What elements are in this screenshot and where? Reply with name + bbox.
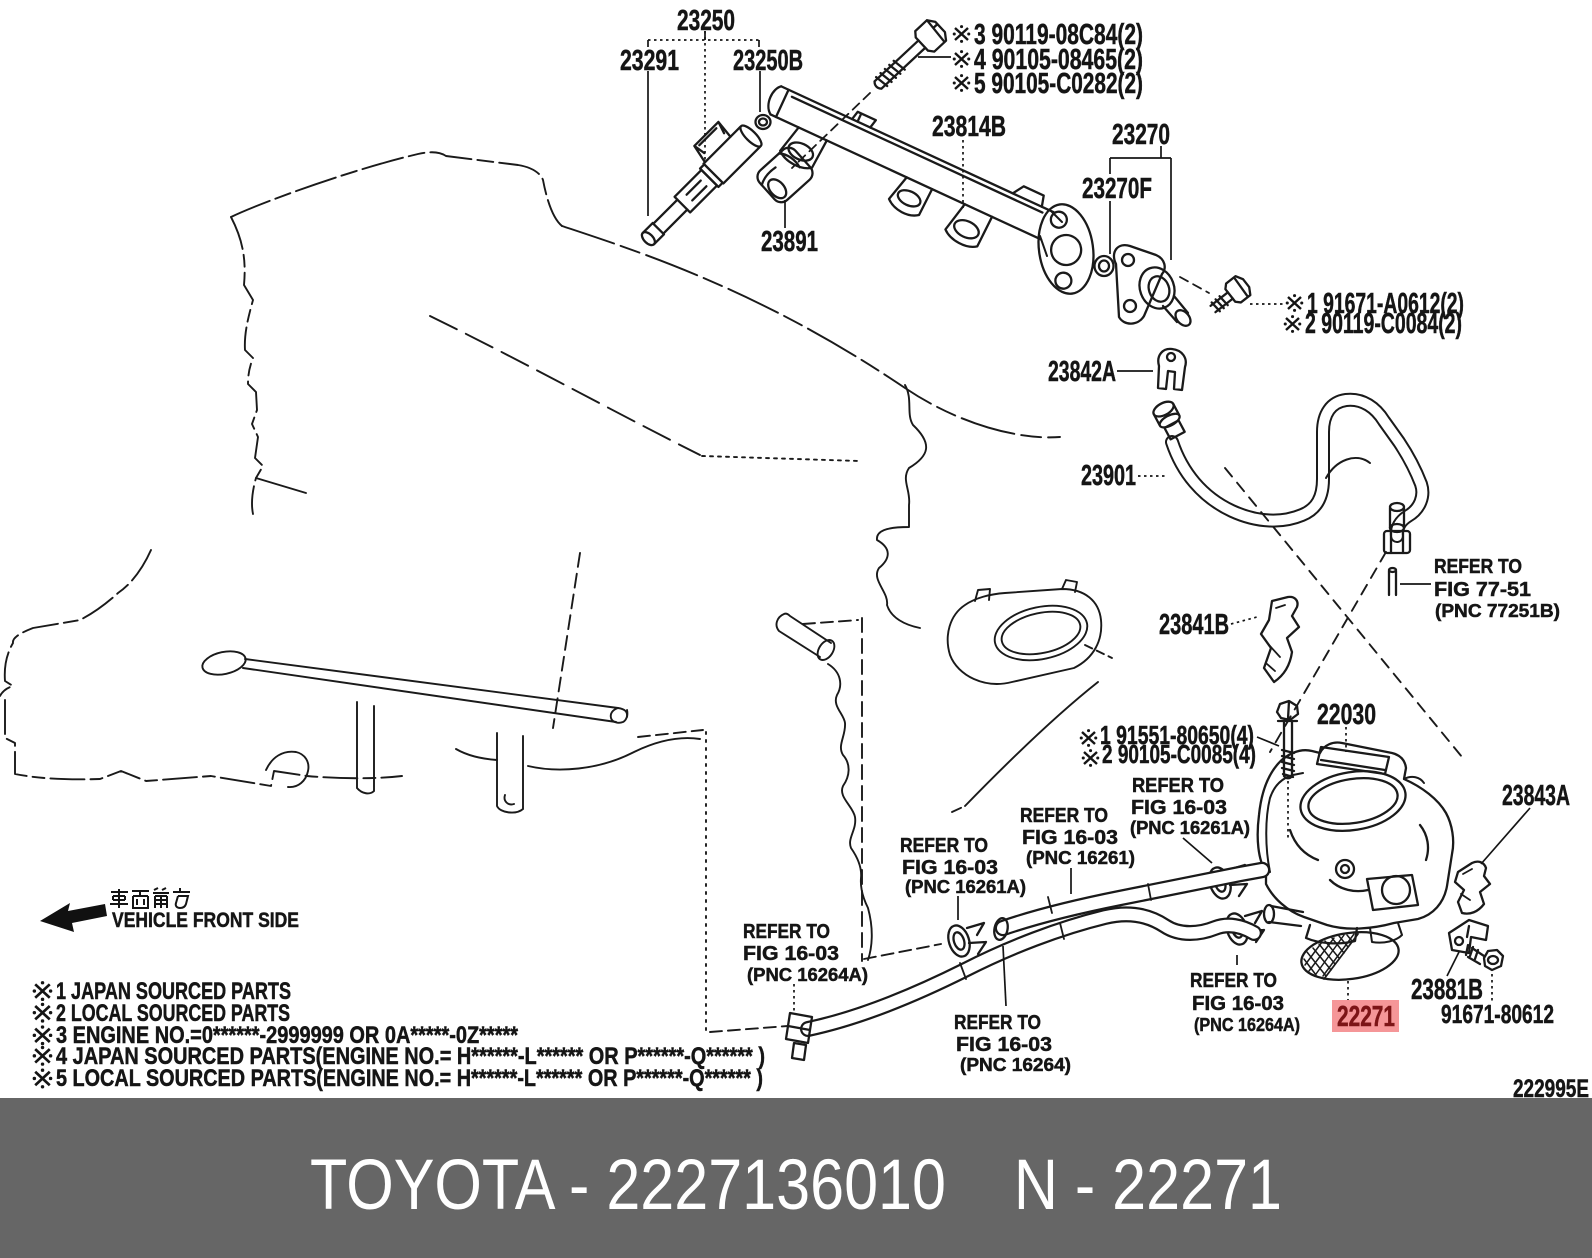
svg-text:REFER TO: REFER TO [1132, 775, 1224, 797]
svg-text:(PNC 16261): (PNC 16261) [1026, 848, 1135, 868]
svg-text:FIG 16-03: FIG 16-03 [1192, 993, 1284, 1015]
svg-text:REFER TO: REFER TO [743, 921, 830, 943]
svg-text:REFER TO: REFER TO [1190, 970, 1277, 992]
svg-text:23901: 23901 [1081, 460, 1136, 492]
svg-text:(PNC 16264A): (PNC 16264A) [1194, 1015, 1300, 1035]
svg-text:23814B: 23814B [932, 111, 1006, 143]
svg-text:2 90105-C0085(4): 2 90105-C0085(4) [1102, 739, 1256, 769]
svg-text:23250B: 23250B [733, 45, 803, 77]
svg-text:(PNC 77251B): (PNC 77251B) [1435, 601, 1560, 621]
svg-text:23842A: 23842A [1048, 356, 1116, 388]
svg-text:23291: 23291 [620, 45, 679, 77]
svg-text:(PNC 16261A): (PNC 16261A) [905, 877, 1026, 897]
svg-text:(PNC 16261A): (PNC 16261A) [1130, 818, 1250, 838]
svg-text:2 90119-C0084(2): 2 90119-C0084(2) [1305, 308, 1462, 340]
svg-text:22030: 22030 [1317, 699, 1376, 731]
svg-text:REFER TO: REFER TO [1434, 556, 1522, 578]
svg-text:FIG 16-03: FIG 16-03 [743, 943, 839, 965]
svg-text:TOYOTA - 2227136010 N - 222: TOYOTA - 2227136010 N - 22271 [310, 1146, 1282, 1225]
svg-text:FIG 16-03: FIG 16-03 [956, 1034, 1052, 1056]
svg-text:23891: 23891 [761, 226, 818, 258]
svg-text:(PNC 16264A): (PNC 16264A) [747, 965, 868, 985]
svg-text:23841B: 23841B [1159, 609, 1229, 641]
svg-text:23270: 23270 [1112, 119, 1170, 151]
svg-text:(PNC 16264): (PNC 16264) [960, 1055, 1071, 1075]
svg-text:FIG 16-03: FIG 16-03 [1131, 797, 1227, 819]
svg-text:REFER TO: REFER TO [954, 1012, 1041, 1034]
svg-text:23270F: 23270F [1082, 173, 1152, 205]
svg-text:FIG 16-03: FIG 16-03 [902, 857, 998, 879]
svg-text:5 LOCAL SOURCED PARTS(ENGINE N: 5 LOCAL SOURCED PARTS(ENGINE NO.= H*****… [56, 1065, 763, 1092]
svg-text:23250: 23250 [677, 5, 735, 37]
svg-text:VEHICLE FRONT SIDE: VEHICLE FRONT SIDE [112, 909, 299, 932]
svg-text:22271: 22271 [1337, 1001, 1395, 1033]
svg-text:91671-80612: 91671-80612 [1441, 999, 1554, 1029]
svg-text:FIG 77-51: FIG 77-51 [1434, 579, 1531, 601]
svg-text:FIG 16-03: FIG 16-03 [1022, 827, 1118, 849]
svg-text:REFER TO: REFER TO [1020, 805, 1108, 827]
svg-text:23843A: 23843A [1502, 780, 1570, 812]
svg-text:REFER TO: REFER TO [900, 835, 988, 857]
svg-text:5 90105-C0282(2): 5 90105-C0282(2) [974, 68, 1143, 100]
